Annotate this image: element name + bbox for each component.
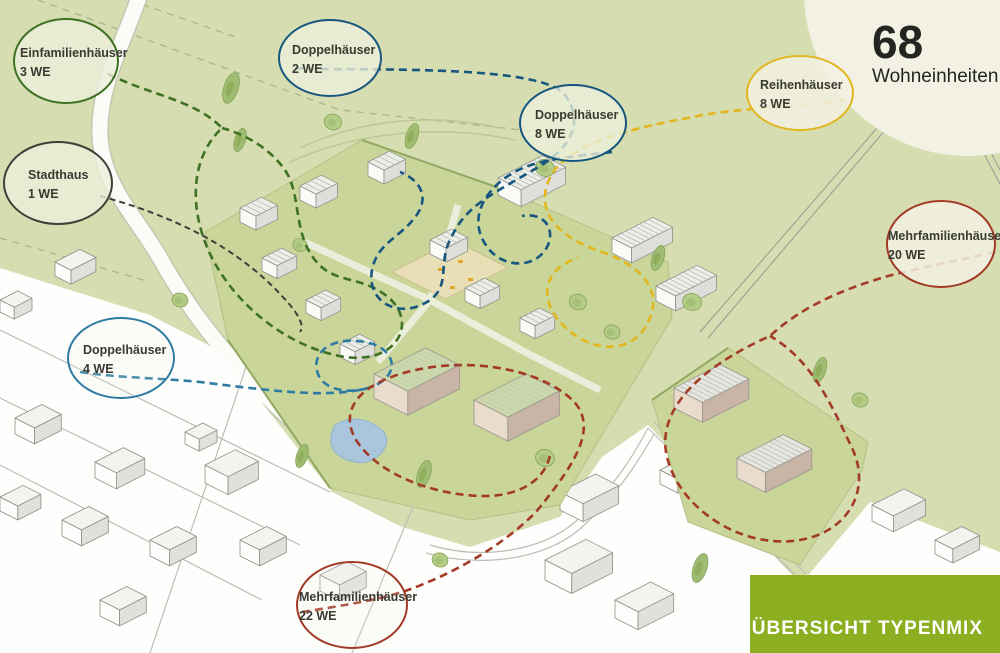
bubble-stadthaus: Stadthaus 1 WE [4,142,112,224]
bubble-label: Einfamilienhäuser [20,46,128,60]
bubble-units: 20 WE [888,248,926,262]
bubble-label: Doppelhäuser [83,343,166,357]
bubble-label: Mehrfamilienhäuser [299,590,417,604]
total-units-label: Wohneinheiten [872,66,998,87]
bubble-units: 22 WE [299,609,337,623]
banner-title: ÜBERSICHT TYPENMIX [752,618,983,639]
bubble-doppelhaeuser-4: Doppelhäuser 4 WE [68,318,174,398]
bubble-doppelhaeuser-8: Doppelhäuser 8 WE [520,85,626,161]
bubble-label: Stadthaus [28,168,88,182]
bubble-units: 4 WE [83,362,114,376]
bubble-units: 8 WE [535,127,566,141]
bubble-label: Doppelhäuser [292,43,375,57]
bubble-units: 2 WE [292,62,323,76]
bubble-units: 8 WE [760,97,791,111]
bubble-units: 3 WE [20,65,51,79]
bubble-reihenhaeuser: Reihenhäuser 8 WE [747,56,853,130]
bubble-label: Mehrfamilienhäuser [888,229,1000,243]
total-units-number: 68 [872,16,923,68]
title-banner: ÜBERSICHT TYPENMIX [750,575,1000,653]
typenmix-site-plan: 68 Wohneinheiten Einfamilienhäuser 3 WE … [0,0,1000,653]
bubble-doppelhaeuser-2: Doppelhäuser 2 WE [279,20,381,96]
bubble-units: 1 WE [28,187,59,201]
bubble-label: Doppelhäuser [535,108,618,122]
site-plan-illustration: 68 Wohneinheiten Einfamilienhäuser 3 WE … [0,0,1000,653]
bubble-label: Reihenhäuser [760,78,843,92]
